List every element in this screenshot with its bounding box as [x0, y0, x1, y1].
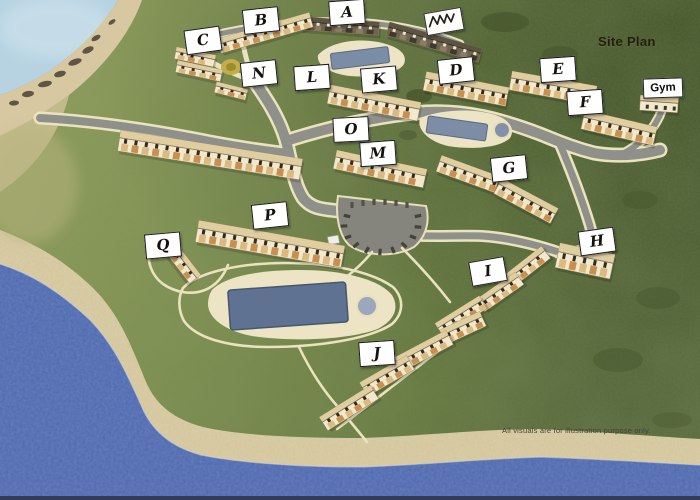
- tree: [636, 287, 680, 309]
- tree: [622, 191, 658, 209]
- tree: [652, 412, 692, 428]
- main-pool: [208, 270, 395, 339]
- tree: [542, 46, 578, 64]
- site-plan-map: Site Plan Gym ABCDEFGHIJKLMNOPQ All visu…: [0, 0, 700, 500]
- terrain-canvas: [0, 0, 700, 500]
- scan-border: [0, 496, 700, 500]
- tree: [399, 130, 417, 140]
- jacuzzi: [494, 122, 510, 138]
- tree: [481, 12, 529, 32]
- building-row-gym: [639, 95, 680, 116]
- tree: [593, 348, 643, 372]
- tree: [226, 63, 236, 71]
- jacuzzi: [357, 296, 377, 316]
